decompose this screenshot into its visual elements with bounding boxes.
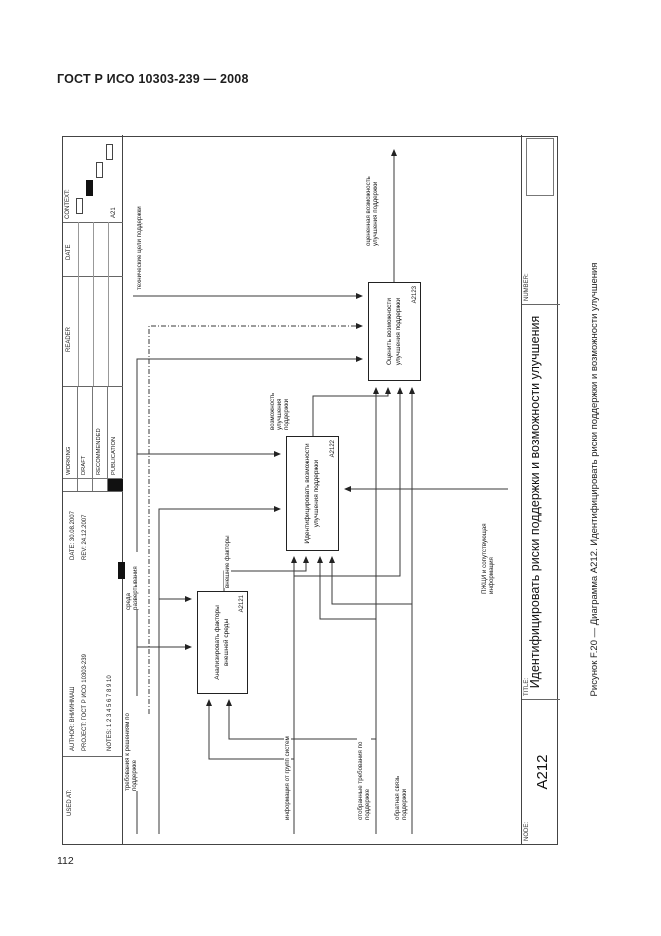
activity-a2122-text: Идентифицировать возможности улучшения п… xyxy=(303,437,321,550)
arrow-label-support-feedback: обратная связь поддержки xyxy=(394,745,408,820)
arrow-label-technical-support-goals: технические цели поддержки xyxy=(136,206,143,290)
activity-a2121-text: Анализировать факторы внешней среды xyxy=(213,592,231,693)
page-number: 112 xyxy=(57,855,74,867)
activity-a2122-id: A2122 xyxy=(330,440,336,457)
arrow-label-info-from-system-groups: информация от групп систем xyxy=(284,736,291,820)
arrow-label-support-improvement-opportunity: возможность улучшения поддержки xyxy=(269,366,290,430)
activity-box-a2123: Оценить возможности улучшения поддержки … xyxy=(368,282,421,381)
arrow-label-selected-support-requirements: отобранные требования по поддержке xyxy=(357,715,371,820)
number-box xyxy=(526,138,554,196)
arrow-label-assessed-opportunity: оцененная возможность улучшения поддержк… xyxy=(365,146,379,246)
arrow-label-deployment-environment: среда развертывания xyxy=(125,552,139,610)
title-cell: TITLE: Идентифицировать риски поддержки … xyxy=(522,304,560,699)
figure-caption: Рисунок F.20 — Диаграмма А212. Идентифиц… xyxy=(589,147,600,812)
node-label: NODE: xyxy=(524,822,530,841)
arrow-label-environment-factors: внешние факторы xyxy=(224,533,231,588)
activity-a2123-id: A2123 xyxy=(412,286,418,303)
number-cell: NUMBER: xyxy=(522,135,560,304)
activity-box-a2122: Идентифицировать возможности улучшения п… xyxy=(286,436,339,551)
number-label: NUMBER: xyxy=(524,273,530,301)
document-page: { "page": { "header": "ГОСТ Р ИСО 10303-… xyxy=(0,0,661,936)
idef0-sheet-frame: USED AT: AUTHOR: ВНИИНМАШ DATE: 30.08.20… xyxy=(62,136,558,845)
node-cell: NODE: А212 xyxy=(522,699,560,844)
standard-designation: ГОСТ Р ИСО 10303-239 — 2008 xyxy=(57,72,249,86)
activity-a2123-text: Оценить возможности улучшения поддержки xyxy=(385,283,403,380)
arrow-label-support-solution-requirements: требования к решениям по поддержке xyxy=(124,696,138,791)
activity-a2121-id: A2121 xyxy=(239,595,245,612)
node-title-bar: NODE: А212 TITLE: Идентифицировать риски… xyxy=(521,135,559,844)
arrow-label-plcs-associated-information: ПЖЦИ и сопутствующая информация xyxy=(481,494,495,594)
node-value: А212 xyxy=(534,700,551,844)
activity-box-a2121: Анализировать факторы внешней среды A212… xyxy=(197,591,248,694)
diagram-title: Идентифицировать риски поддержки и возмо… xyxy=(528,313,542,691)
